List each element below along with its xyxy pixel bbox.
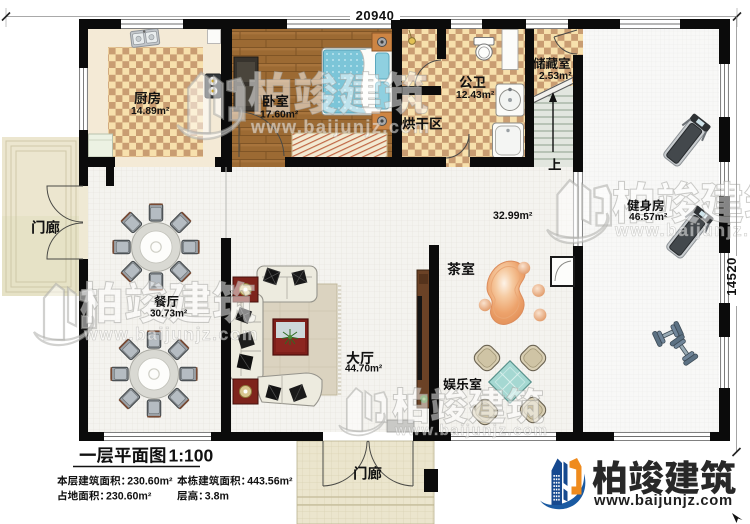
svg-text:14.89m²: 14.89m² — [131, 106, 170, 117]
svg-text:1:100: 1:100 — [169, 446, 214, 466]
svg-text:www.baijunjz.com: www.baijunjz.com — [614, 220, 750, 240]
svg-text:3.8m: 3.8m — [205, 491, 229, 503]
svg-text:46.57m²: 46.57m² — [629, 212, 668, 223]
svg-text:32.99m²: 32.99m² — [493, 210, 533, 222]
svg-text:230.60m²: 230.60m² — [127, 476, 173, 488]
svg-text:www.baijunjz.com: www.baijunjz.com — [83, 324, 259, 344]
svg-text:14520: 14520 — [724, 257, 739, 296]
svg-text:www.baijunjz.com: www.baijunjz.com — [593, 493, 733, 509]
svg-text:12.43m²: 12.43m² — [456, 90, 495, 101]
svg-text:20940: 20940 — [356, 8, 395, 23]
svg-text:www.baijunjz.com: www.baijunjz.com — [394, 422, 548, 439]
svg-text:17.60m²: 17.60m² — [260, 110, 299, 121]
svg-text:230.60m²: 230.60m² — [106, 491, 152, 503]
svg-text:2.53m²: 2.53m² — [539, 71, 572, 82]
svg-text:443.56m²: 443.56m² — [247, 476, 293, 488]
svg-text:30.73m²: 30.73m² — [150, 309, 188, 320]
svg-text:44.70m²: 44.70m² — [345, 364, 383, 375]
